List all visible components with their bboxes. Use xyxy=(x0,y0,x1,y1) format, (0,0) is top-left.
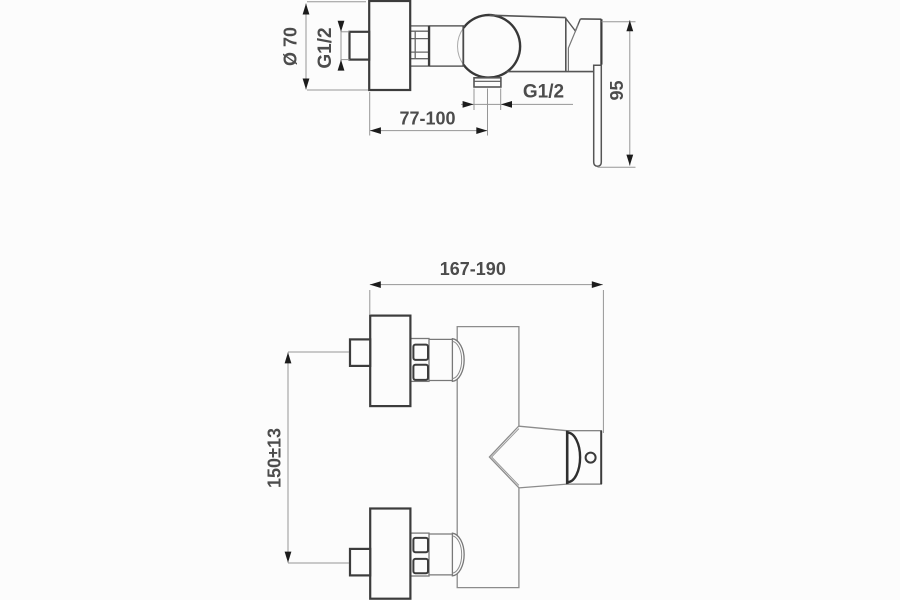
svg-text:167-190: 167-190 xyxy=(440,259,506,279)
svg-text:G1/2: G1/2 xyxy=(523,81,564,102)
svg-text:77-100: 77-100 xyxy=(399,109,455,129)
svg-text:G1/2: G1/2 xyxy=(315,27,336,68)
svg-text:Ø 70: Ø 70 xyxy=(281,27,301,66)
svg-text:150±13: 150±13 xyxy=(264,428,284,488)
svg-text:95: 95 xyxy=(607,80,627,100)
